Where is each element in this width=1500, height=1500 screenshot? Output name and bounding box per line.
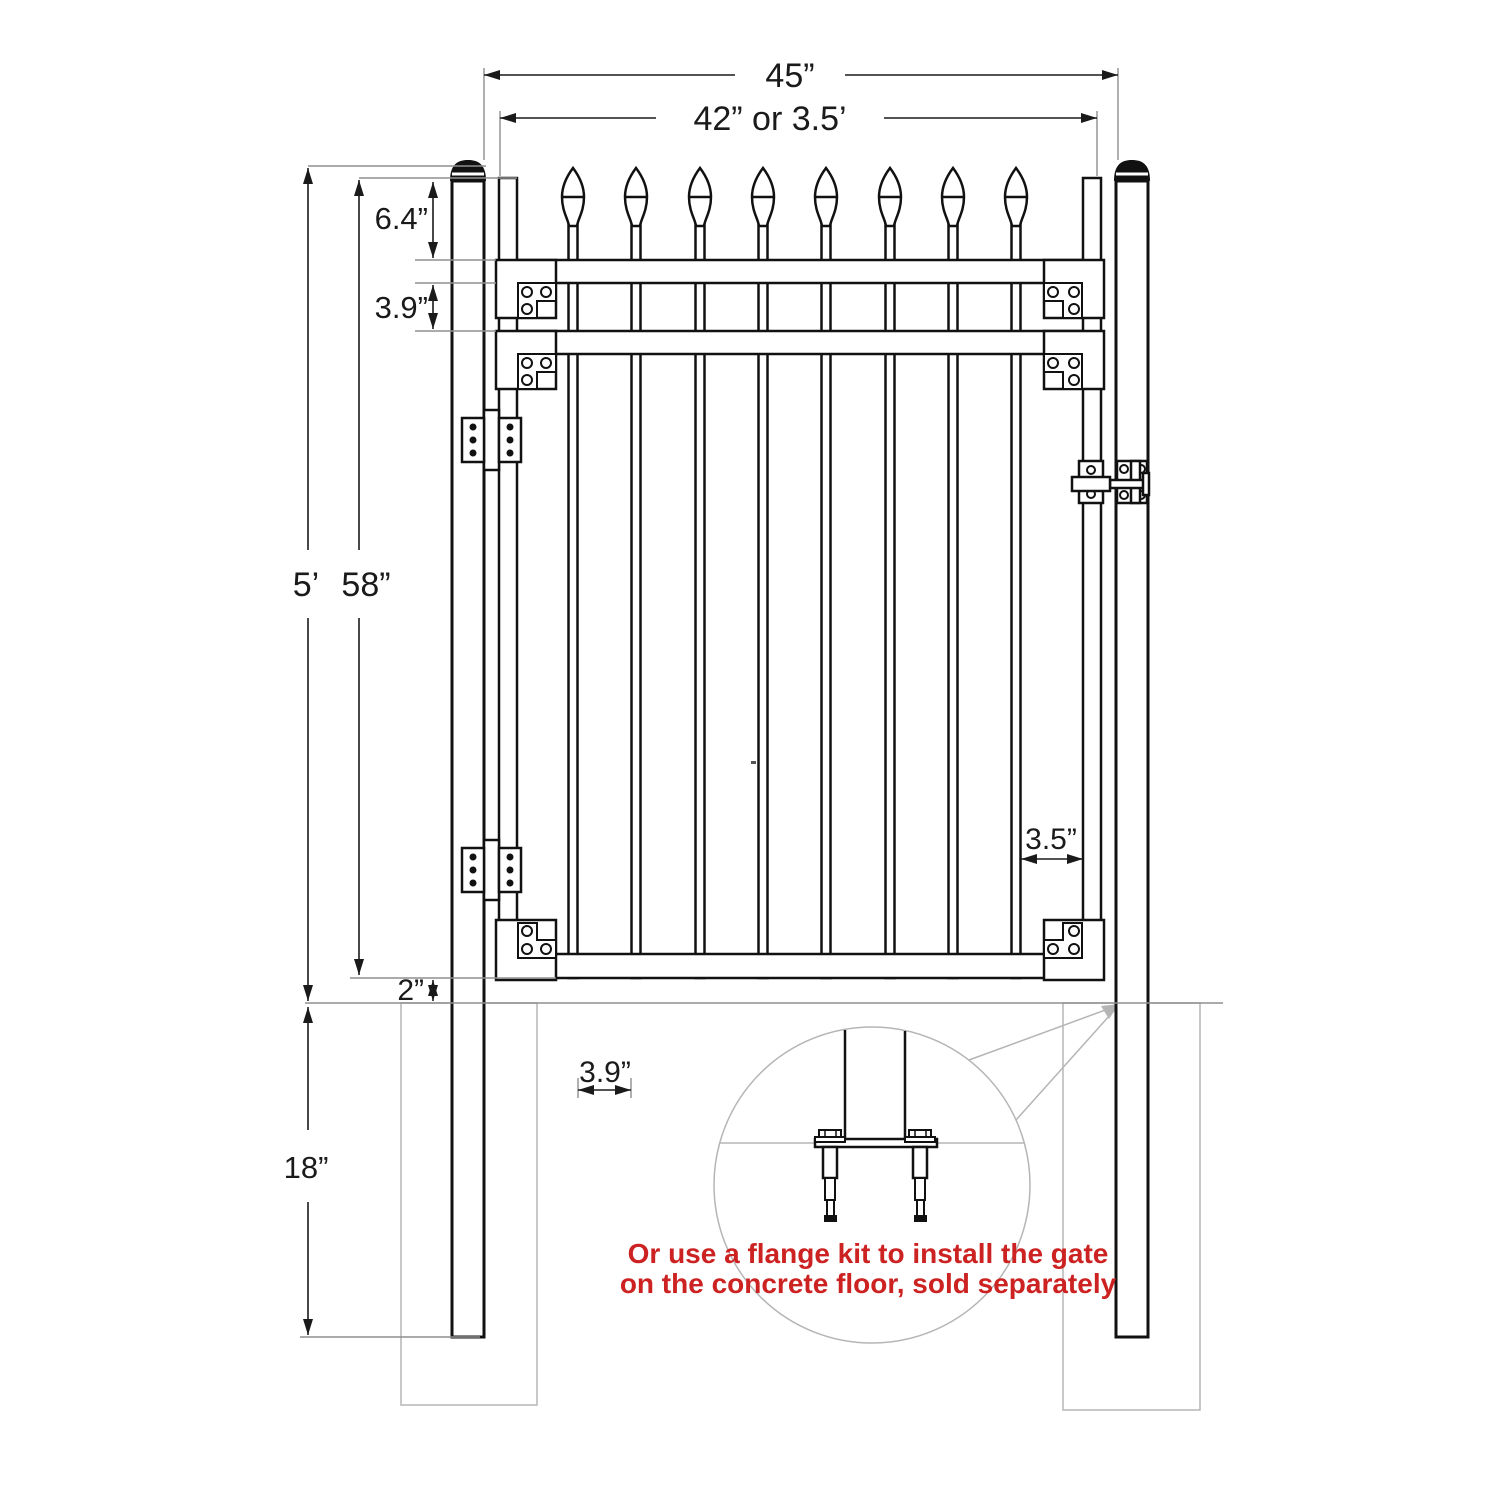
picket (689, 168, 711, 978)
left-post (450, 160, 486, 1337)
picket (562, 168, 584, 978)
stray-mark (751, 761, 756, 764)
gate-width-label: 42” or 3.5’ (693, 100, 846, 138)
right-post-cap (1114, 160, 1150, 181)
finial-to-rail-label: 6.4” (375, 201, 428, 236)
dimension-rail-spacing: 3.9” (375, 285, 433, 329)
dimension-picket-spacing: 3.9” (578, 1056, 631, 1090)
gate-diagram-canvas: 45” 42” or 3.5’ 5’ 58” 6.4” 3.9” 2” 18” … (0, 0, 1500, 1500)
picket (1005, 168, 1027, 978)
pickets (562, 168, 1027, 978)
hinge-top (462, 410, 521, 470)
bottom-rail (517, 954, 1083, 978)
latch-slide-bar (1110, 480, 1144, 488)
hinge-barrel (484, 410, 499, 470)
dimension-post-height: 5’ (293, 168, 319, 1001)
latch-slide-block (1072, 477, 1110, 491)
flange-note-line2: on the concrete floor, sold separately (620, 1268, 1117, 1299)
rail-spacing-label: 3.9” (375, 290, 428, 325)
extension-lines (300, 68, 1118, 1337)
gate-latch (1072, 461, 1149, 503)
dimension-post-depth: 18” (284, 1007, 329, 1335)
dimension-overall-width: 45” (484, 57, 1118, 95)
picket (815, 168, 837, 978)
picket (879, 168, 901, 978)
gate-rails (517, 260, 1083, 978)
gate-installation-diagram-page: 45” 42” or 3.5’ 5’ 58” 6.4” 3.9” 2” 18” … (0, 0, 1500, 1500)
flange-detail-callout: Or use a flange kit to install the gate … (620, 1027, 1117, 1343)
dimension-finial-to-rail: 6.4” (375, 182, 433, 258)
dimension-ground-clearance: 2” (397, 974, 433, 1007)
picket (625, 168, 647, 978)
right-post-tube (1116, 181, 1148, 1337)
picket (752, 168, 774, 978)
hinge-bottom (462, 840, 521, 900)
dimension-picket-to-frame: 3.5” (1021, 823, 1083, 859)
right-post (1114, 160, 1150, 1337)
hinge-barrel (484, 840, 499, 900)
post-height-label: 5’ (293, 566, 319, 604)
latch-knob (1143, 473, 1149, 495)
callout-leader-lines (969, 1004, 1119, 1120)
second-rail (517, 331, 1083, 354)
picket (942, 168, 964, 978)
gate-height-label: 58” (341, 566, 390, 604)
overall-width-label: 45” (765, 57, 814, 95)
concrete-footings (401, 1003, 1200, 1410)
ground-clearance-label: 2” (397, 974, 424, 1007)
picket-to-frame-label: 3.5” (1025, 823, 1077, 856)
post-depth-label: 18” (284, 1150, 329, 1185)
picket-spacing-label: 3.9” (579, 1056, 631, 1089)
top-rail (517, 260, 1083, 283)
left-post-tube (452, 181, 484, 1337)
dimension-gate-width: 42” or 3.5’ (500, 100, 1097, 138)
flange-note-line1: Or use a flange kit to install the gate (628, 1238, 1109, 1269)
